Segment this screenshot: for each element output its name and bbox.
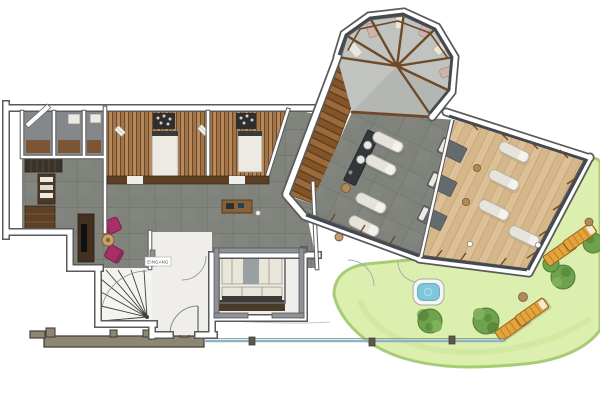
entrance-corridor-floor: [150, 232, 212, 335]
tv-screen: [81, 224, 87, 252]
wall-light-1: [467, 241, 472, 246]
sauna-1-door: [127, 176, 143, 184]
shower-bench-3: [87, 140, 101, 153]
towel-stack-2: [40, 185, 53, 190]
sauna-1-pillow: [152, 131, 178, 136]
ceiling-light: [255, 210, 260, 215]
floor-plan: EINGANG: [0, 0, 600, 400]
garden-side-table-2: [585, 218, 593, 226]
shower-bench-1: [26, 140, 50, 153]
floor-plan-page: EINGANG: [0, 0, 600, 400]
whirlpool: [413, 279, 444, 305]
relax-side-table-2: [462, 198, 469, 205]
relax-side-table-1: [473, 164, 480, 171]
locker-cabinet: [25, 159, 62, 172]
towel-stack-3: [40, 193, 53, 198]
wall-post-2: [110, 330, 117, 337]
main-building: [22, 108, 320, 335]
sauna-2-door: [229, 176, 245, 184]
sideboard-item-2: [238, 203, 244, 208]
closet-floor-strip: [219, 300, 285, 311]
entrance-label-text: EINGANG: [147, 260, 168, 265]
lounge-table-center: [106, 238, 110, 242]
wood-chest: [25, 206, 55, 230]
sauna-2-bench: [238, 131, 262, 172]
entrance-label: EINGANG: [145, 257, 171, 266]
shower-bench-2: [58, 140, 80, 153]
retaining-wall-hook: [30, 331, 45, 338]
garden-side-table-1: [519, 293, 528, 302]
shower-tray-2: [68, 114, 80, 124]
wall-post-1: [46, 328, 55, 337]
spa-side-table: [342, 184, 351, 193]
shower-tray-3: [90, 114, 101, 123]
wall-light-2: [535, 242, 540, 247]
towel-stack-1: [40, 177, 53, 182]
retaining-wall: [44, 336, 204, 347]
handrail-post-1: [249, 337, 255, 345]
handrail-post-2: [369, 338, 375, 346]
closet-center-panel: [243, 258, 259, 284]
sauna-2-pillow: [238, 131, 262, 136]
wardrobe-closet: [219, 255, 285, 311]
sideboard-item-1: [226, 203, 234, 209]
sauna-1-bench: [152, 131, 178, 176]
bush-1: [417, 309, 442, 333]
closet-base: [222, 296, 282, 301]
handrail-post-3: [449, 336, 455, 344]
bush-2: [473, 308, 499, 334]
